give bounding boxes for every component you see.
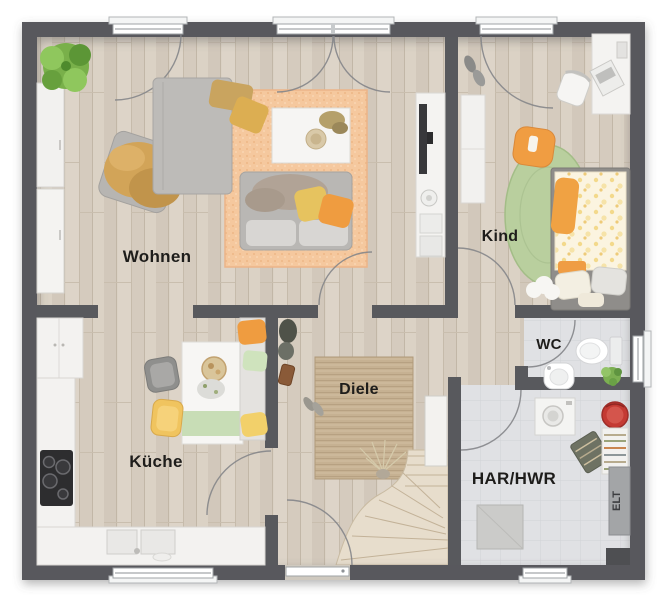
kid-bed bbox=[550, 168, 630, 310]
blanket-highlight bbox=[109, 145, 145, 171]
bed-pillow bbox=[591, 266, 628, 295]
sink-basin bbox=[141, 530, 175, 554]
floor-plan-canvas: Wohnen Kind Küche Diele WC HAR/HWR ELT bbox=[0, 0, 667, 600]
decor-plate bbox=[202, 357, 226, 381]
toilet bbox=[576, 337, 622, 365]
wall-har-left bbox=[448, 377, 461, 565]
label-kueche: Küche bbox=[129, 452, 182, 471]
tv-sideboard bbox=[416, 93, 445, 257]
sink-basin bbox=[107, 530, 137, 554]
kitchen-counter-bottom bbox=[37, 527, 265, 565]
wall-wohnen-kueche-left bbox=[37, 305, 98, 318]
wall-wohnen-diele-right bbox=[372, 305, 458, 318]
faucet bbox=[134, 548, 140, 554]
desk bbox=[590, 34, 630, 114]
wall-wohnen-diele-left bbox=[193, 305, 318, 318]
window-wohnen-left bbox=[109, 17, 187, 34]
label-wohnen: Wohnen bbox=[123, 247, 192, 266]
open-door-leaf-panel bbox=[425, 396, 447, 466]
window-wc bbox=[633, 331, 651, 387]
main-sofa bbox=[240, 172, 355, 250]
label-elt: ELT bbox=[611, 491, 623, 511]
window-kueche bbox=[109, 568, 217, 583]
chair-gray bbox=[143, 355, 180, 393]
bench-with-pillows bbox=[237, 318, 269, 440]
basin-tap bbox=[547, 366, 551, 370]
corner-plant bbox=[40, 43, 91, 92]
storage-box bbox=[477, 505, 523, 549]
wardrobe-kind bbox=[461, 95, 485, 203]
har-corner-pier bbox=[606, 548, 630, 565]
label-wc: WC bbox=[536, 336, 562, 353]
label-kind: Kind bbox=[482, 228, 519, 245]
seat-cushion bbox=[246, 220, 296, 246]
window-kind bbox=[476, 17, 557, 34]
coffee-table bbox=[272, 108, 350, 163]
bed-pillow-small bbox=[578, 293, 604, 307]
laundry-basket-red bbox=[602, 402, 628, 428]
window-wohnen-double bbox=[273, 17, 394, 34]
entry-door bbox=[285, 565, 350, 580]
bench-pillow-yellow bbox=[240, 411, 269, 437]
chair-yellow bbox=[150, 399, 184, 438]
floor-cushion-orange bbox=[512, 125, 557, 168]
washing-machine bbox=[535, 398, 575, 435]
notebook bbox=[617, 42, 627, 58]
floor-plan-drawing: Wohnen Kind Küche Diele WC HAR/HWR ELT bbox=[0, 0, 667, 600]
wc-basin bbox=[544, 363, 574, 389]
hall-jute-rug bbox=[315, 357, 413, 479]
table-runner bbox=[182, 411, 243, 436]
label-diele: Diele bbox=[339, 381, 379, 398]
wall-kueche-entry-stub bbox=[265, 515, 278, 565]
window-har bbox=[519, 568, 571, 583]
wall-wohnen-kind bbox=[445, 37, 458, 305]
label-har-hwr: HAR/HWR bbox=[472, 469, 556, 488]
dining-table bbox=[182, 342, 243, 444]
bench-pillow-green bbox=[242, 350, 268, 372]
tv-screen bbox=[419, 104, 427, 174]
tall-cabinet bbox=[37, 318, 83, 378]
bouquet bbox=[197, 379, 225, 399]
kitchen-counter-left bbox=[37, 378, 75, 527]
bench-pillow-orange bbox=[237, 319, 267, 346]
